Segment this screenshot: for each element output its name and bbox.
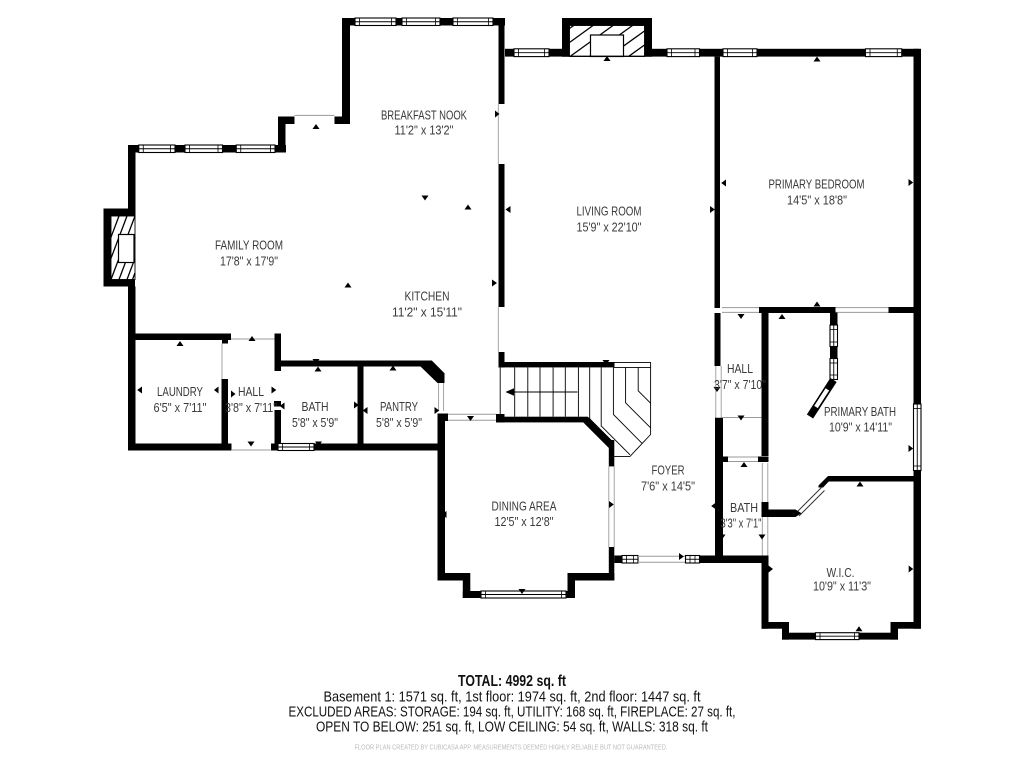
svg-text:12'5" x 12'8": 12'5" x 12'8" [495, 514, 554, 529]
svg-text:7'6" x 14'5": 7'6" x 14'5" [641, 479, 695, 494]
svg-text:3'3" x 7'1": 3'3" x 7'1" [721, 516, 762, 531]
svg-text:3'7" x 7'10": 3'7" x 7'10" [714, 377, 766, 392]
svg-text:FLOOR PLAN CREATED BY CUBICASA: FLOOR PLAN CREATED BY CUBICASA APP. MEAS… [355, 745, 668, 752]
svg-text:14'5" x 18'8": 14'5" x 18'8" [787, 193, 847, 208]
svg-text:TOTAL: 4992 sq. ft: TOTAL: 4992 sq. ft [458, 673, 566, 690]
svg-text:FOYER: FOYER [652, 463, 685, 478]
svg-text:BATH: BATH [302, 399, 329, 414]
svg-text:BREAKFAST NOOK: BREAKFAST NOOK [381, 108, 467, 123]
svg-text:FAMILY ROOM: FAMILY ROOM [215, 238, 283, 253]
svg-text:10'9" x 11'3": 10'9" x 11'3" [813, 579, 871, 594]
svg-text:PRIMARY BATH: PRIMARY BATH [824, 404, 896, 419]
svg-text:KITCHEN: KITCHEN [405, 289, 450, 304]
svg-text:5'8" x 5'9": 5'8" x 5'9" [292, 415, 338, 430]
svg-text:11'2" x 15'11": 11'2" x 15'11" [392, 305, 462, 320]
svg-text:17'8" x 17'9": 17'8" x 17'9" [220, 254, 278, 269]
svg-text:HALL: HALL [727, 361, 753, 376]
svg-text:6'5" x 7'11": 6'5" x 7'11" [154, 400, 207, 415]
svg-text:BATH: BATH [730, 500, 758, 515]
svg-text:15'9" x 22'10": 15'9" x 22'10" [577, 220, 642, 235]
svg-text:LIVING ROOM: LIVING ROOM [577, 204, 642, 219]
svg-text:OPEN TO BELOW: 251 sq. ft, LOW: OPEN TO BELOW: 251 sq. ft, LOW CEILING: … [316, 719, 709, 736]
svg-text:PRIMARY BEDROOM: PRIMARY BEDROOM [769, 177, 865, 192]
svg-text:DINING AREA: DINING AREA [492, 499, 557, 514]
svg-text:5'8" x 5'9": 5'8" x 5'9" [376, 415, 422, 430]
svg-text:10'9" x 14'11": 10'9" x 14'11" [829, 420, 892, 435]
svg-text:3'8" x 7'11": 3'8" x 7'11" [225, 400, 277, 415]
svg-text:HALL: HALL [238, 384, 264, 399]
svg-text:11'2" x 13'2": 11'2" x 13'2" [395, 123, 454, 138]
svg-text:PANTRY: PANTRY [380, 399, 418, 414]
svg-text:LAUNDRY: LAUNDRY [157, 384, 203, 399]
